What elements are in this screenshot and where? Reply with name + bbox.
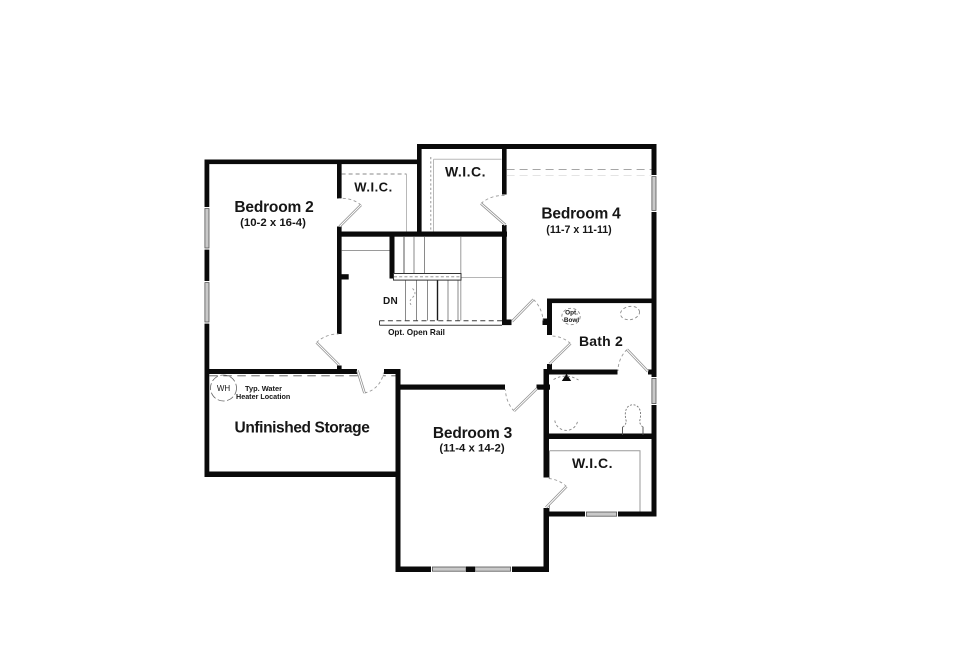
- svg-text:(10-2 x 16-4): (10-2 x 16-4): [240, 217, 306, 229]
- svg-text:(11-4 x 14-2): (11-4 x 14-2): [439, 443, 504, 455]
- svg-text:W.I.C.: W.I.C.: [354, 180, 392, 195]
- svg-text:Bowl: Bowl: [564, 317, 579, 324]
- svg-text:Bedroom 2: Bedroom 2: [234, 199, 313, 216]
- svg-text:Bedroom 4: Bedroom 4: [541, 206, 621, 223]
- svg-text:WH: WH: [217, 384, 231, 393]
- svg-text:W.I.C.: W.I.C.: [445, 164, 486, 180]
- svg-text:Bedroom 3: Bedroom 3: [433, 425, 513, 442]
- svg-text:Bath 2: Bath 2: [579, 333, 623, 349]
- svg-text:W.I.C.: W.I.C.: [572, 455, 613, 471]
- svg-text:Unfinished Storage: Unfinished Storage: [235, 420, 371, 437]
- svg-text:Opt. Open Rail: Opt. Open Rail: [388, 328, 445, 337]
- svg-text:Heater Location: Heater Location: [236, 392, 290, 401]
- svg-text:DN: DN: [383, 296, 398, 307]
- svg-text:Opt.: Opt.: [565, 310, 578, 317]
- svg-text:(11-7 x 11-11): (11-7 x 11-11): [546, 224, 611, 236]
